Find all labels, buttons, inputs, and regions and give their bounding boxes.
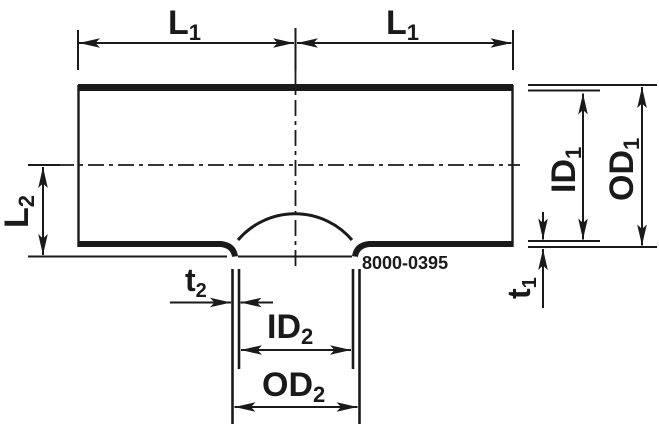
drawing-canvas: L1 L1 L2 ID1 OD1 t1 t2 ID2 OD2 8000-0395 (0, 0, 659, 425)
centerlines (28, 70, 520, 267)
label-od1: OD1 (603, 138, 644, 201)
label-id2: ID2 (267, 308, 313, 349)
label-l1-left: L1 (168, 4, 201, 45)
label-id1: ID1 (545, 147, 586, 193)
dimension-labels: L1 L1 L2 ID1 OD1 t1 t2 ID2 OD2 8000-0395 (0, 4, 644, 407)
label-t2: t2 (185, 262, 207, 302)
label-l1-right: L1 (386, 4, 419, 45)
label-od2: OD2 (262, 366, 325, 407)
label-t1: t1 (501, 277, 541, 299)
pipe-bottom-wall-left (78, 244, 235, 257)
dimension-lines (43, 43, 642, 407)
technical-drawing: L1 L1 L2 ID1 OD1 t1 t2 ID2 OD2 8000-0395 (0, 0, 659, 425)
label-l2: L2 (0, 195, 39, 228)
part-number: 8000-0395 (362, 253, 448, 273)
extension-lines (28, 28, 657, 257)
